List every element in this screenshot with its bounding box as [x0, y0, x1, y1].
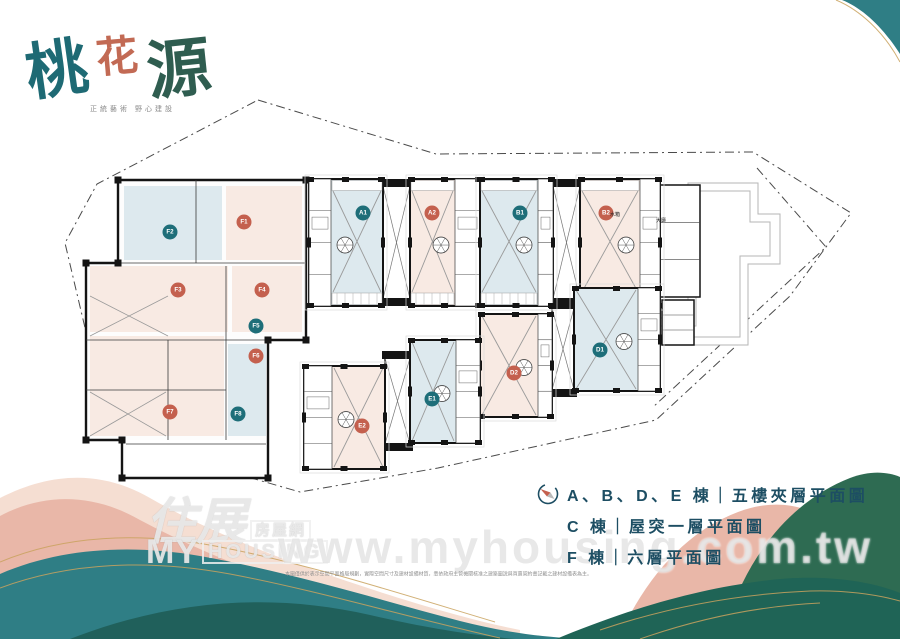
legend-text-3: F 棟｜六層平面圖	[567, 544, 725, 568]
legend-text-1: A、B、D、E 棟｜五樓夾層平面圖	[567, 482, 868, 506]
logo-char-hua: 花	[95, 34, 141, 80]
legend-text-2: C 棟｜屋突一層平面圖	[567, 513, 766, 537]
watermark-en-my: MY	[146, 535, 199, 569]
page: A1A2B1B2D1D2E1E2F2F1F3F4F5F6F7F8水箱大廳 桃 花…	[0, 0, 900, 639]
disclaimer-text: 本圖僅供於表示空間平面格局規劃，實際空間尺寸及建材設備材質，悉依政府主管機關核准…	[285, 570, 592, 577]
project-logo: 桃 花 源 正統藝術 野心建設	[26, 36, 246, 114]
wave-ridge-right	[556, 578, 900, 639]
plan-legend: A、B、D、E 棟｜五樓夾層平面圖 C 棟｜屋突一層平面圖 F 棟｜六層平面圖	[536, 478, 868, 571]
compass-icon	[536, 482, 560, 506]
legend-row-3: F 棟｜六層平面圖	[567, 540, 868, 571]
logo-char-yuan: 源	[144, 35, 214, 105]
legend-row-1: A、B、D、E 棟｜五樓夾層平面圖	[536, 478, 868, 509]
logo-char-tao: 桃	[22, 35, 92, 105]
legend-row-2: C 棟｜屋突一層平面圖	[567, 509, 868, 540]
